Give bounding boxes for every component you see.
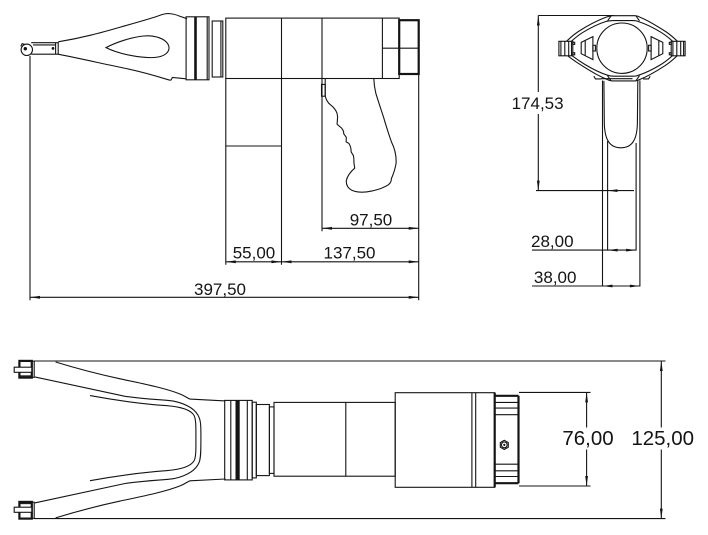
- svg-text:55,00: 55,00: [233, 244, 276, 263]
- svg-text:397,50: 397,50: [194, 280, 246, 299]
- svg-text:97,50: 97,50: [350, 211, 393, 230]
- svg-text:137,50: 137,50: [324, 244, 376, 263]
- svg-text:174,53: 174,53: [512, 94, 564, 113]
- svg-text:28,00: 28,00: [531, 232, 574, 251]
- svg-text:38,00: 38,00: [534, 268, 577, 287]
- svg-text:125,00: 125,00: [631, 427, 694, 450]
- svg-text:76,00: 76,00: [562, 427, 613, 450]
